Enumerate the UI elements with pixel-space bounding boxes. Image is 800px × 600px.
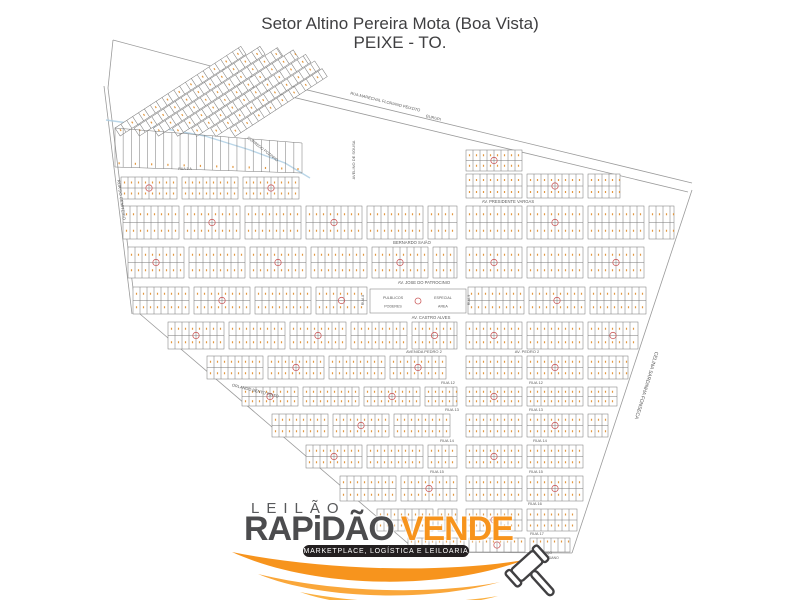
city-block <box>123 206 179 239</box>
city-block <box>425 387 457 406</box>
city-block <box>333 414 389 437</box>
street-label: RUA 5 A <box>178 167 192 171</box>
map-title: Setor Altino Pereira Mota (Boa Vista) PE… <box>0 14 800 52</box>
city-block <box>527 445 583 468</box>
city-block <box>527 509 577 531</box>
city-block <box>329 356 385 379</box>
street-label: RUA 14 <box>440 438 455 443</box>
street-label: ARTESIANO <box>539 556 559 560</box>
city-block <box>243 177 299 199</box>
city-block <box>527 356 583 379</box>
special-block-label: PODERES <box>384 305 402 309</box>
city-block <box>527 247 583 278</box>
city-block <box>527 206 583 239</box>
city-block <box>351 322 407 349</box>
title-line2: PEIXE - TO. <box>0 33 800 52</box>
street-label: RUA 8 <box>361 295 365 305</box>
city-block <box>433 247 457 278</box>
city-block <box>390 356 446 379</box>
street-label: AVELINO DE SOUSA <box>351 140 356 179</box>
city-block <box>245 206 301 239</box>
street-label: RUA 9 <box>467 295 471 305</box>
street-label: RUA 15 <box>529 469 544 474</box>
street-label: RUA 15 <box>430 469 445 474</box>
street-label: AV. PRESIDENTE VARGAS <box>482 199 534 204</box>
city-block <box>527 414 583 437</box>
city-block <box>466 445 522 468</box>
city-block <box>394 414 450 437</box>
street-label: AV. JOSE DO PATROCINIO <box>398 280 451 285</box>
city-block <box>229 322 285 349</box>
city-block <box>250 247 306 278</box>
city-block <box>184 206 240 239</box>
city-block <box>182 177 238 199</box>
city-block <box>466 206 522 239</box>
city-block <box>588 387 617 406</box>
city-block <box>189 247 245 278</box>
street-label: RUA 12 <box>529 380 544 385</box>
city-block <box>401 476 457 501</box>
city-block <box>466 356 522 379</box>
city-block <box>527 322 583 349</box>
city-block <box>290 322 346 349</box>
special-block-label: ESPECIAL <box>434 296 452 300</box>
city-block <box>588 356 628 379</box>
city-block <box>121 177 177 199</box>
special-block-label: AREA <box>438 305 448 309</box>
logo-brand: RAPiDÃOVENDE <box>244 510 513 549</box>
city-block <box>207 356 263 379</box>
city-block <box>367 206 423 239</box>
logo-rapidao-text: RAPiDÃO <box>244 510 394 548</box>
city-block <box>466 322 522 349</box>
city-block <box>268 356 324 379</box>
city-block <box>588 206 644 239</box>
city-block <box>428 445 457 468</box>
street-label: RUA MARECHAL FLORIANO PEIXOTO <box>350 90 421 112</box>
city-block <box>412 322 457 349</box>
city-block <box>372 247 428 278</box>
logo-vende-text: VENDE <box>401 510 513 548</box>
street-label: RUA 17 <box>530 531 545 536</box>
city-block <box>340 476 396 501</box>
city-block <box>527 174 583 198</box>
city-block <box>466 150 522 171</box>
street-label: RUA 14 <box>533 438 548 443</box>
city-block <box>311 247 367 278</box>
city-block <box>428 206 457 239</box>
city-block <box>466 387 522 406</box>
city-block <box>588 322 638 349</box>
special-area-block: PULBLICOSPODERESESPECIALAREA <box>370 289 466 313</box>
street-label: RUA 13 <box>445 407 460 412</box>
city-block <box>133 287 189 314</box>
city-block <box>530 538 570 552</box>
city-block <box>466 414 522 437</box>
street-label: RUA 12 <box>441 380 456 385</box>
street-label: CELINA SARDINHA FONSECA <box>633 351 659 421</box>
city-block <box>466 247 522 278</box>
street-label: POÇO <box>542 551 552 555</box>
city-block <box>306 206 362 239</box>
city-block <box>128 247 184 278</box>
city-block <box>364 387 420 406</box>
city-block <box>303 387 359 406</box>
street-label: RUA 13 <box>529 407 544 412</box>
block-rows <box>121 150 674 552</box>
city-block <box>466 174 522 198</box>
city-block <box>316 287 367 314</box>
city-block <box>649 206 674 239</box>
city-block <box>255 287 311 314</box>
city-block <box>194 287 250 314</box>
city-block <box>529 287 585 314</box>
street-label: AVENIDA PEDRO 2 <box>406 349 442 354</box>
city-block <box>367 445 423 468</box>
street-label: BERNARDO SAIÃO <box>393 240 431 245</box>
title-line1: Setor Altino Pereira Mota (Boa Vista) <box>0 14 800 33</box>
street-label: RUA 16 <box>528 501 543 506</box>
city-block <box>468 287 524 314</box>
city-block <box>306 445 362 468</box>
street-label: AV. PEDRO 2 <box>515 349 540 354</box>
city-block <box>272 414 328 437</box>
city-block <box>527 476 583 501</box>
special-block-label: PULBLICOS <box>383 296 404 300</box>
street-label: AV. CASTRO ALVES <box>412 315 451 320</box>
city-block <box>168 322 224 349</box>
city-block <box>588 174 620 198</box>
city-block <box>588 247 644 278</box>
city-block <box>590 287 646 314</box>
strip-lots <box>115 128 302 173</box>
city-block <box>527 387 583 406</box>
city-block <box>466 476 522 501</box>
logo-tagline: MARKETPLACE, LOGÍSTICA E LEILOARIA <box>303 545 469 557</box>
city-block <box>588 414 608 437</box>
